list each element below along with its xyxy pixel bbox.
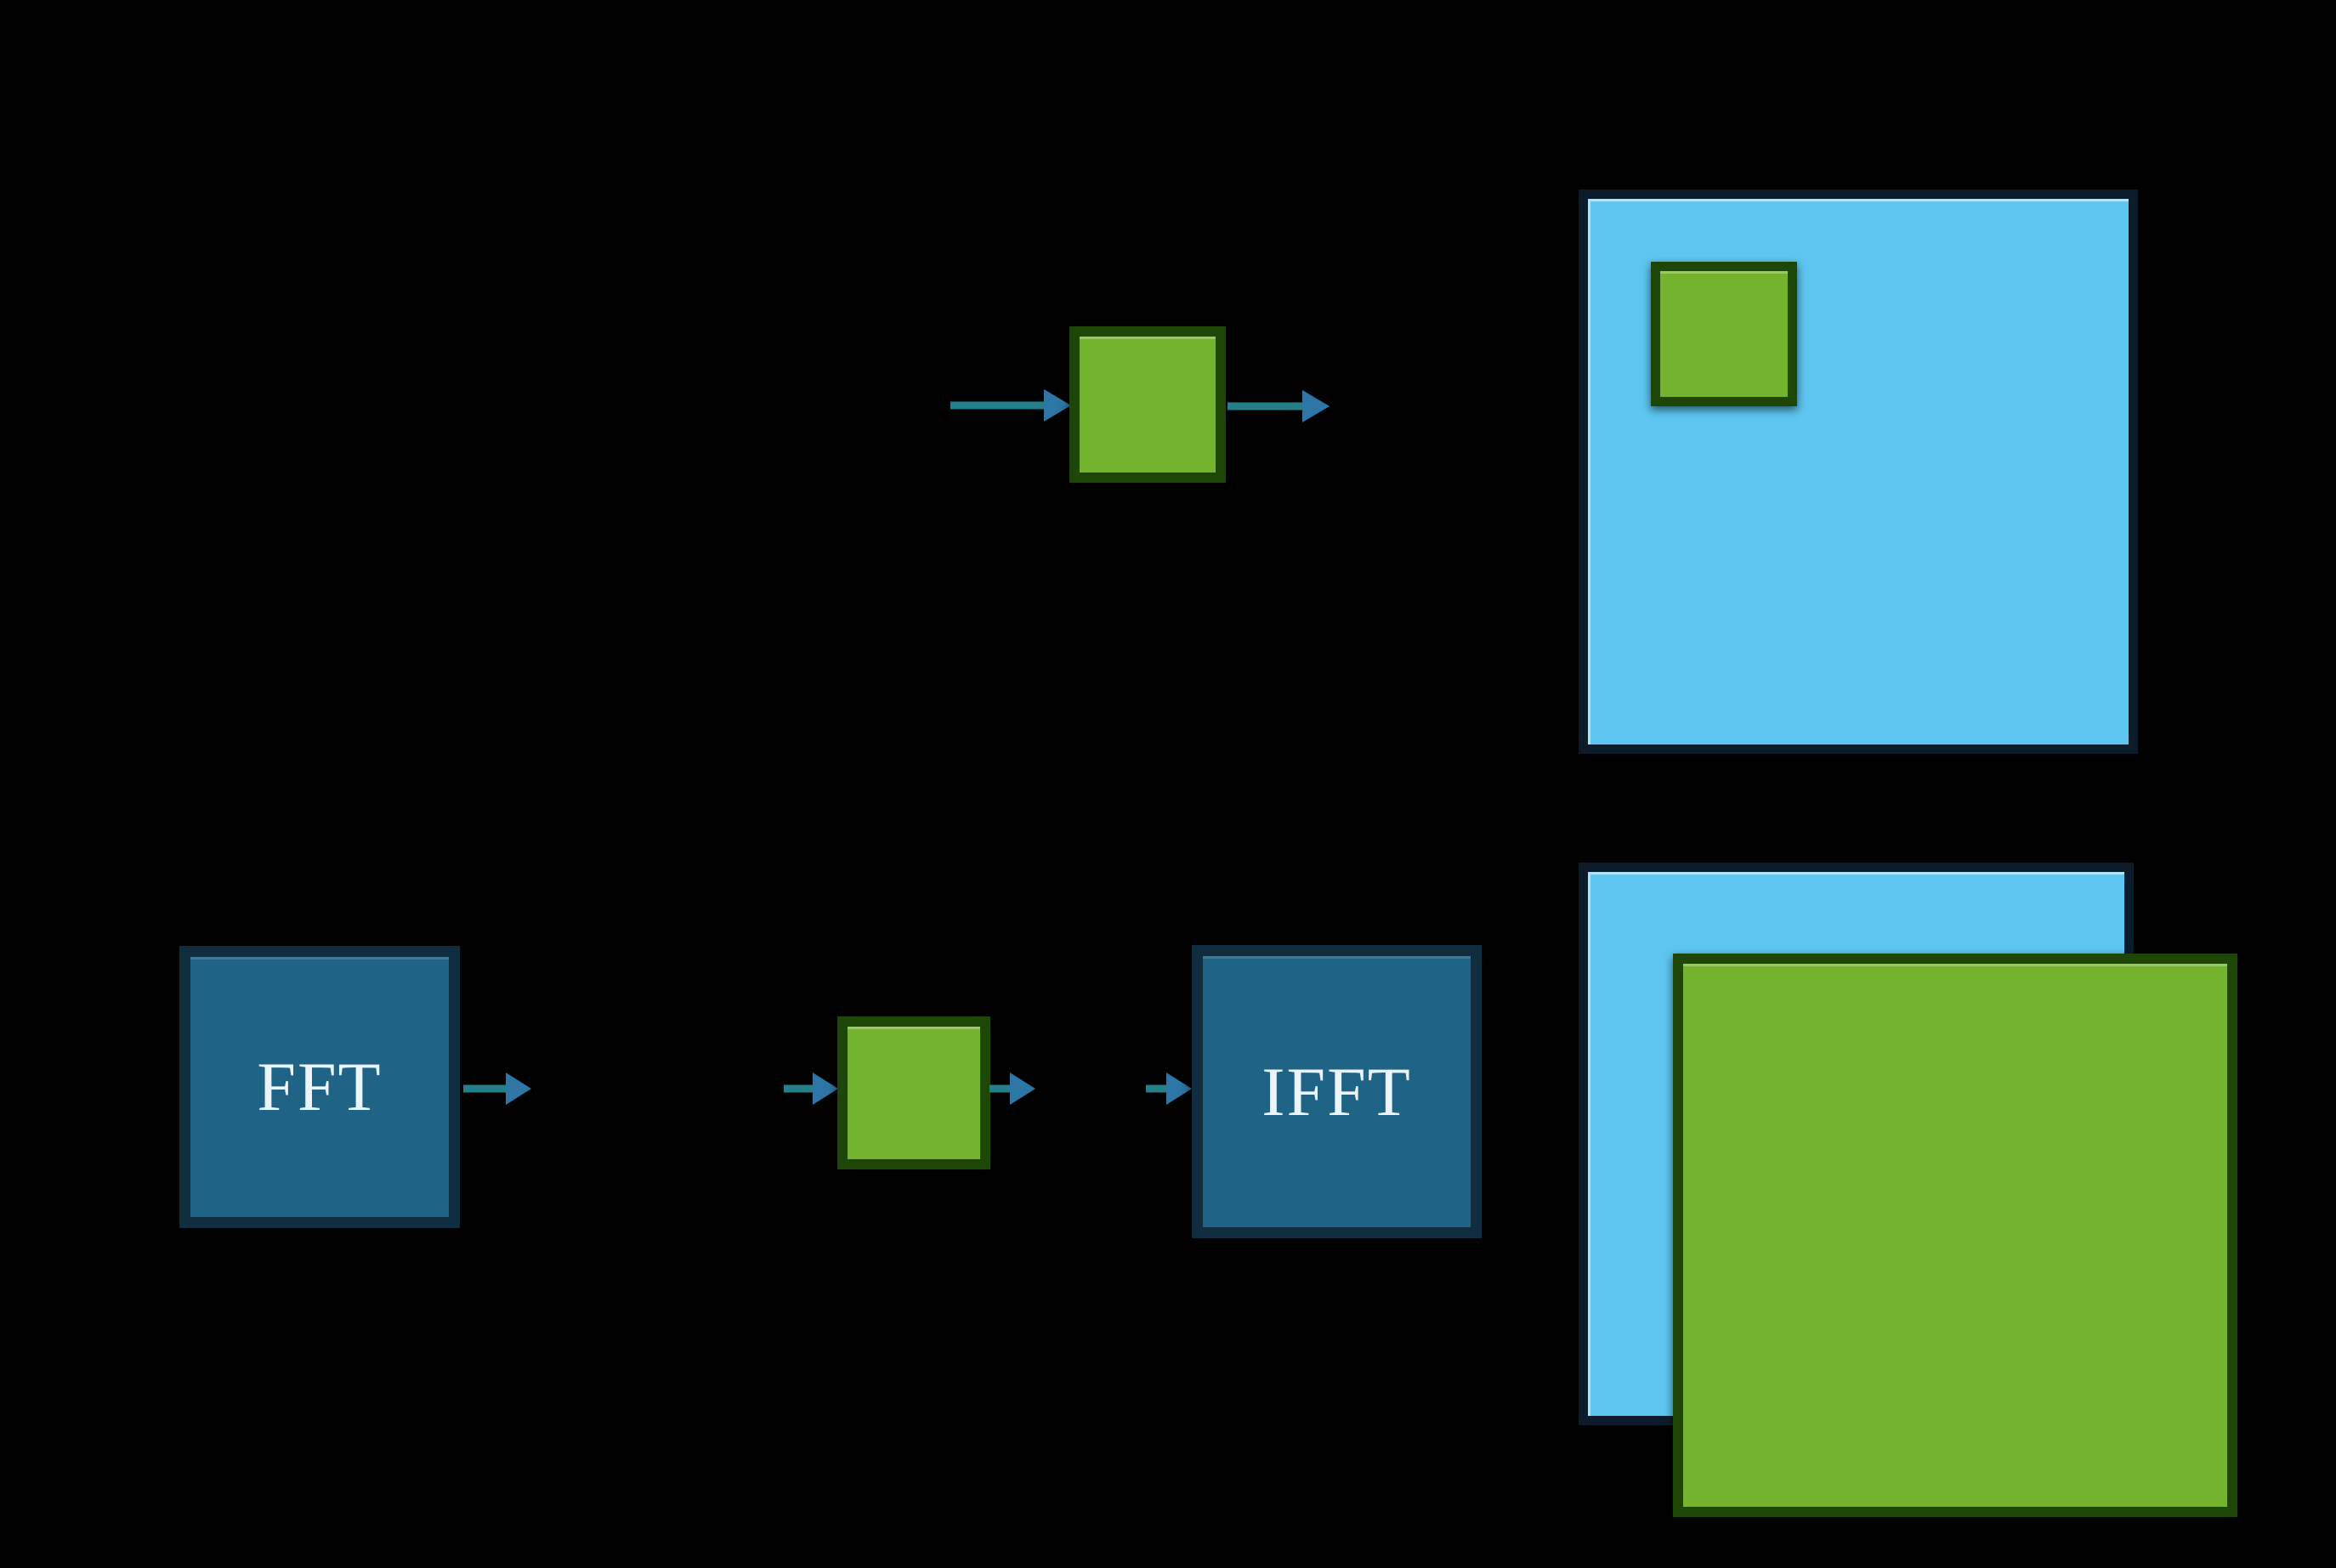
arrow-head xyxy=(1166,1073,1192,1105)
arrow-head xyxy=(506,1073,531,1105)
arrow-head xyxy=(1010,1073,1035,1105)
arrow-fft-output-icon xyxy=(463,1069,533,1108)
arrow-into-ifft-icon xyxy=(1146,1069,1194,1108)
spatial-image-kernel-overlay-box xyxy=(1651,262,1797,406)
fft-label: FFT xyxy=(257,1052,382,1122)
arrow-head xyxy=(1302,390,1330,422)
arrow-frequency-kernel-output-icon xyxy=(989,1069,1037,1108)
arrow-head xyxy=(1044,389,1071,422)
slide-canvas: FFT IFFT xyxy=(0,0,2336,1568)
spatial-image-box xyxy=(1579,190,2138,754)
arrow-input-to-spatial-kernel-icon xyxy=(949,386,1073,425)
arrow-head xyxy=(813,1073,838,1105)
fft-box: FFT xyxy=(179,946,460,1228)
spatial-kernel-box xyxy=(1069,326,1226,483)
ifft-label: IFFT xyxy=(1262,1057,1412,1127)
frequency-kernel-box xyxy=(837,1016,990,1169)
ifft-box: IFFT xyxy=(1192,945,1482,1238)
frequency-padded-kernel-box xyxy=(1673,954,2237,1517)
arrow-spatial-kernel-to-image-icon xyxy=(1226,387,1331,426)
arrow-into-frequency-kernel-icon xyxy=(784,1069,840,1108)
